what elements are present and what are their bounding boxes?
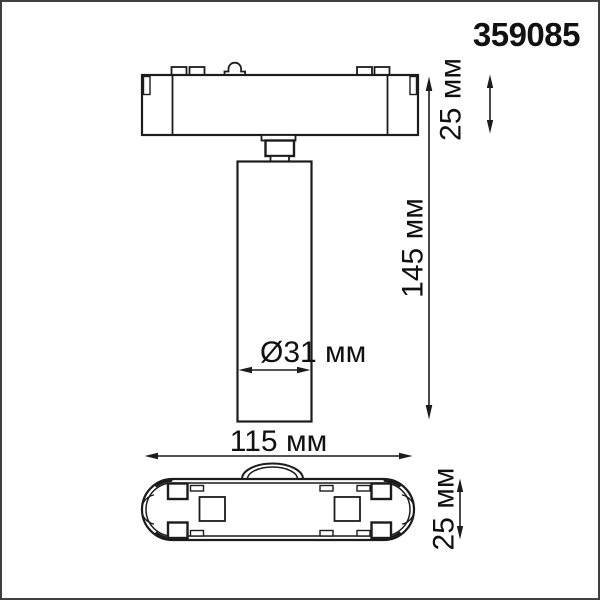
magnet-square bbox=[168, 523, 188, 539]
dim-width-label: 115 мм bbox=[230, 425, 327, 458]
dim-depth-label: 25 мм bbox=[428, 468, 461, 551]
dim-overall-height-label: 145 мм bbox=[397, 198, 430, 298]
arrowhead-down bbox=[426, 405, 433, 420]
contact-tab bbox=[172, 67, 187, 75]
contact-slot bbox=[191, 486, 204, 492]
base-dome-button bbox=[225, 63, 246, 75]
arrowhead-down bbox=[487, 120, 493, 134]
arrowhead-right bbox=[399, 453, 413, 459]
contact-slot bbox=[357, 531, 370, 537]
contact-slot bbox=[320, 531, 333, 537]
dim-base-height-arrow bbox=[487, 75, 493, 134]
swivel-neck bbox=[262, 135, 296, 162]
clip-bump-inner bbox=[248, 467, 298, 479]
clip-bump-outer bbox=[242, 464, 303, 479]
base-contact-tabs bbox=[172, 67, 390, 75]
magnet-square bbox=[372, 523, 392, 539]
track-base-body bbox=[142, 75, 418, 135]
dim-base-height-label: 25 мм bbox=[435, 58, 468, 141]
drawing-svg: 359085 Ø31 мм 115 мм 145 мм 25 мм 25 мм bbox=[2, 2, 598, 598]
dim-diameter-label: Ø31 мм bbox=[260, 336, 366, 369]
contact-slot bbox=[320, 486, 333, 492]
lamp-cylinder bbox=[238, 162, 312, 422]
arrowhead-left bbox=[145, 453, 159, 459]
contact-tab bbox=[190, 67, 205, 75]
contact-tab bbox=[375, 67, 390, 75]
contact-tab bbox=[357, 67, 372, 75]
magnet-square bbox=[372, 484, 392, 500]
product-code: 359085 bbox=[473, 16, 580, 53]
contact-slot bbox=[191, 531, 204, 537]
center-square-right bbox=[335, 497, 361, 521]
technical-drawing-page: 359085 Ø31 мм 115 мм 145 мм 25 мм 25 мм bbox=[0, 0, 600, 600]
magnet-square bbox=[168, 484, 188, 500]
bottom-view bbox=[142, 464, 415, 540]
contact-slot bbox=[357, 486, 370, 492]
neck-block bbox=[266, 141, 295, 157]
arrowhead-up bbox=[426, 77, 433, 92]
center-square-left bbox=[200, 497, 226, 521]
arrowhead-up bbox=[487, 75, 493, 89]
